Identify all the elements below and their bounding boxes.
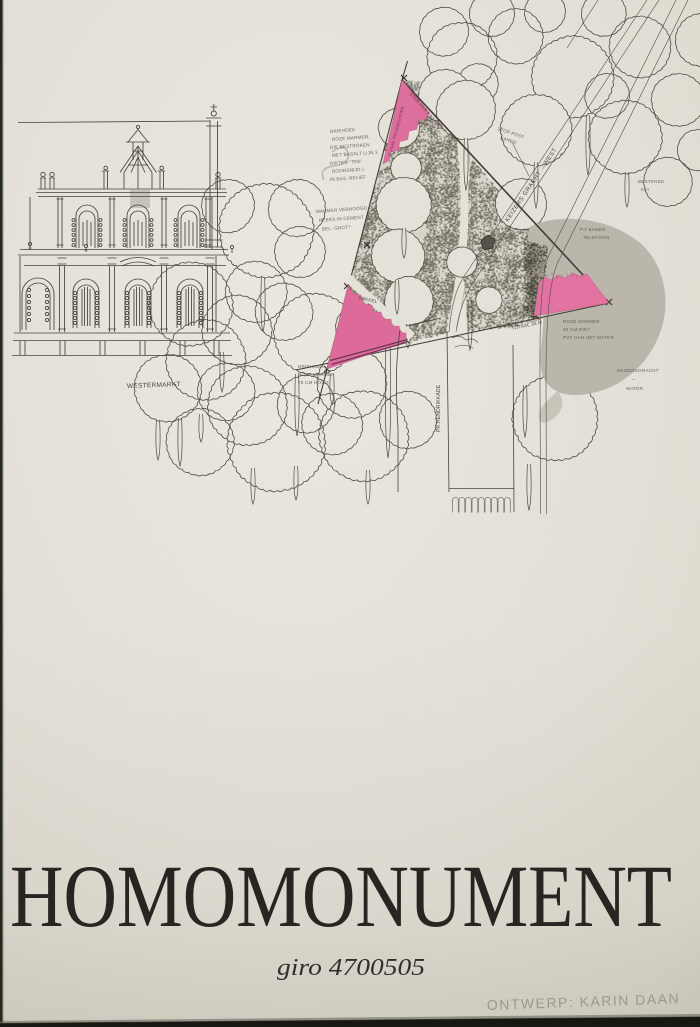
svg-text:P.T BANEN: P.T BANEN xyxy=(580,227,605,232)
svg-text:WATER: WATER xyxy=(626,386,644,391)
svg-text:ROZE MARMER: ROZE MARMER xyxy=(298,372,335,377)
svg-text:DRIEHOEK: DRIEHOEK xyxy=(298,364,324,369)
svg-text:KEIZERSGRACHT: KEIZERSGRACHT xyxy=(617,368,659,373)
svg-text:50 CM DIK?: 50 CM DIK? xyxy=(563,327,590,332)
svg-text:BESTENDE: BESTENDE xyxy=(638,179,664,184)
svg-text:PR.HENDRIKKADE: PR.HENDRIKKADE xyxy=(436,384,442,432)
svg-text:PVT HAN HET WATER: PVT HAN HET WATER xyxy=(563,335,614,340)
svg-text:ROZE MARMER: ROZE MARMER xyxy=(563,319,600,324)
svg-text:KEI.: KEI. xyxy=(641,187,650,192)
svg-text:TELEFOON: TELEFOON xyxy=(583,235,609,240)
svg-text:~: ~ xyxy=(632,377,635,382)
svg-text:75 CM HOOG: 75 CM HOOG xyxy=(298,380,329,385)
